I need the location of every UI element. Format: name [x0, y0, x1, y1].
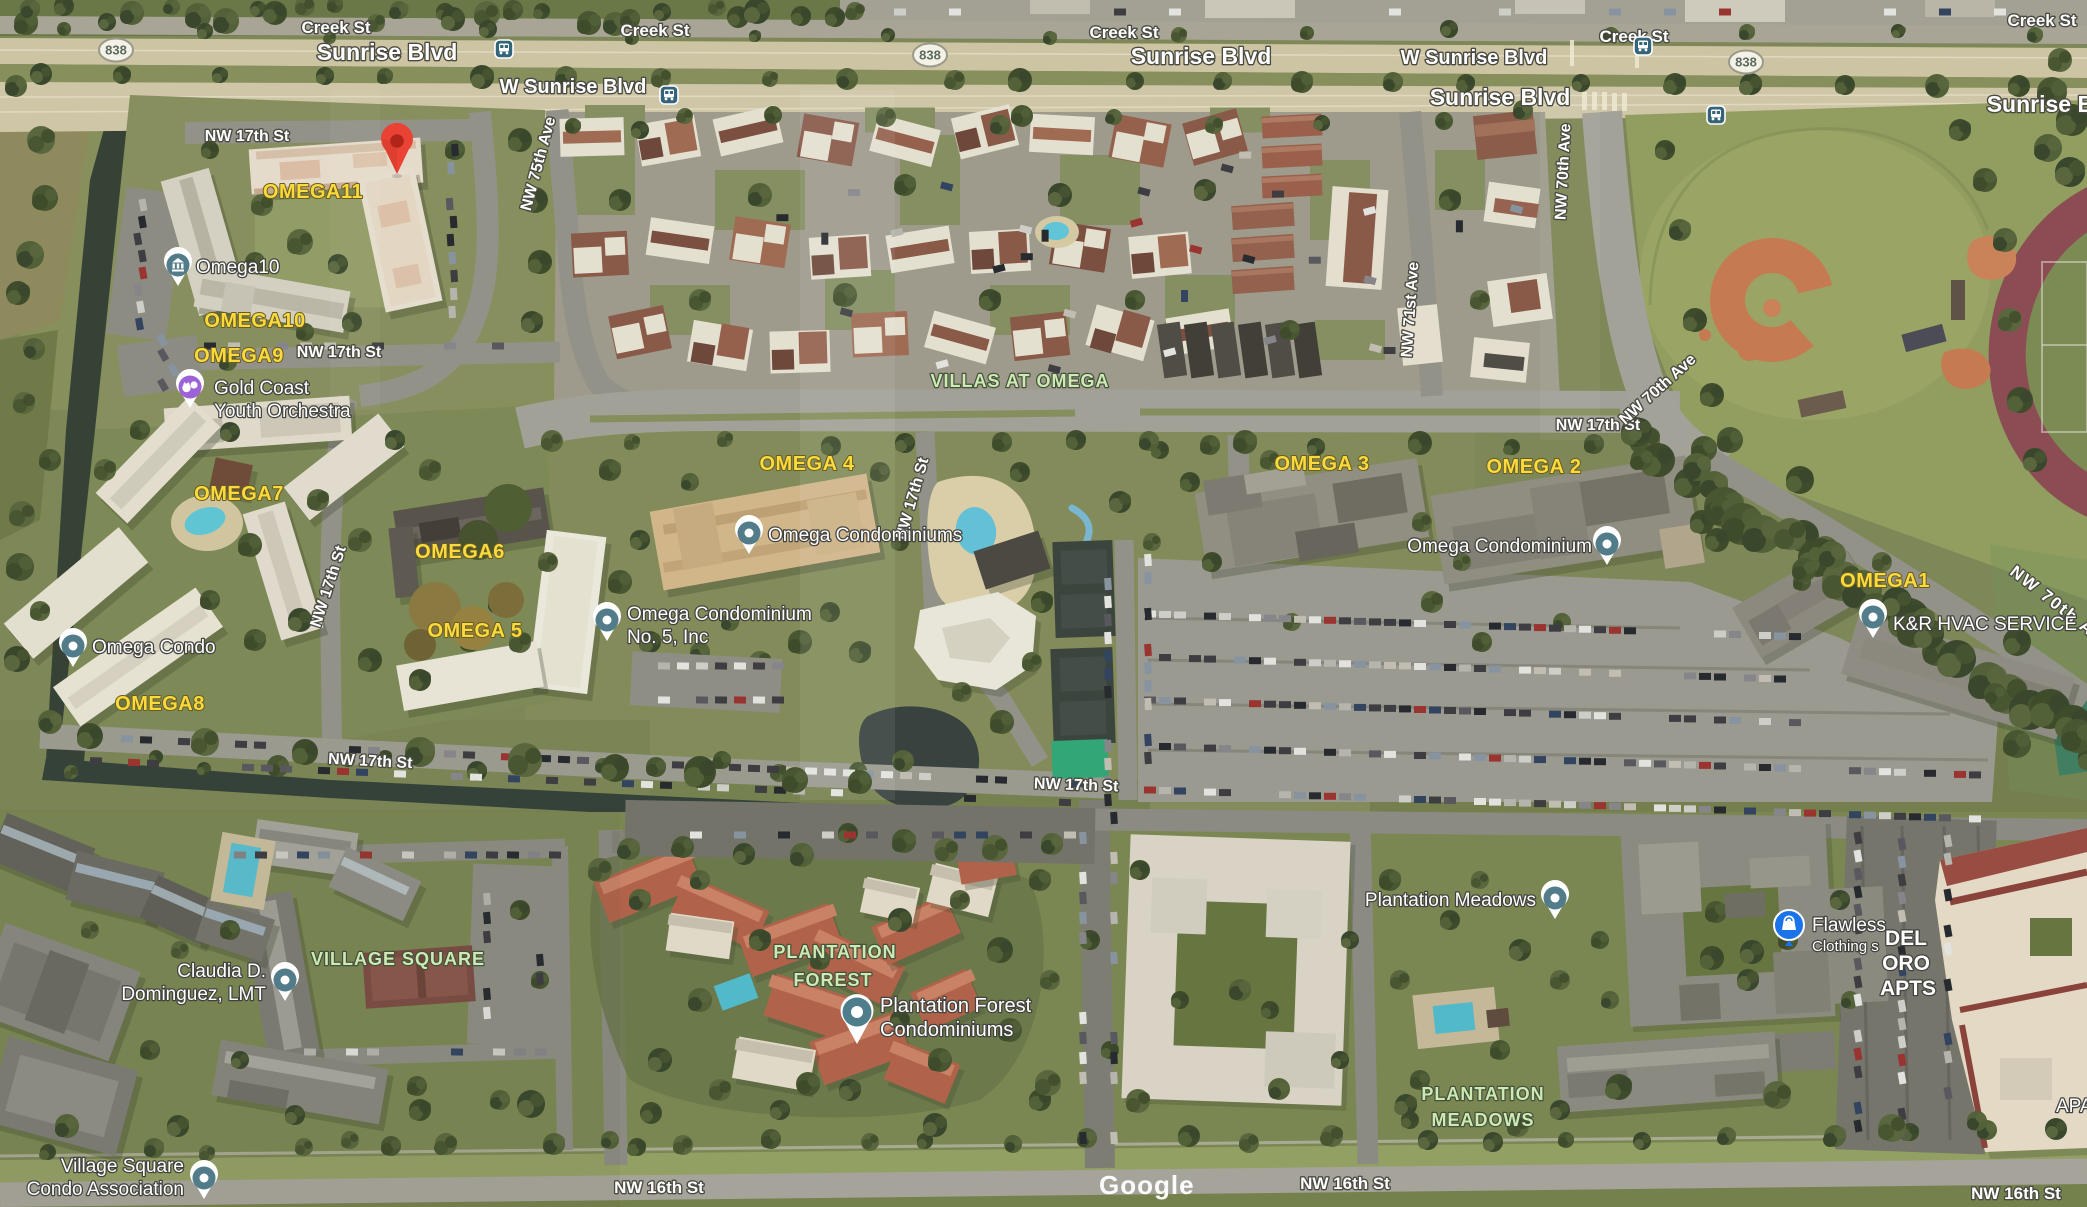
- svg-text:OMEGA 4: OMEGA 4: [760, 453, 855, 475]
- svg-text:VILLAGE SQUARE: VILLAGE SQUARE: [311, 949, 485, 969]
- svg-text:MEADOWS: MEADOWS: [1432, 1110, 1535, 1130]
- svg-text:Omega Condominiums: Omega Condominiums: [768, 525, 962, 546]
- svg-text:838: 838: [105, 43, 127, 58]
- svg-text:PLANTATION: PLANTATION: [773, 942, 896, 962]
- svg-text:Clothing s: Clothing s: [1812, 938, 1879, 955]
- svg-text:Creek St: Creek St: [621, 21, 690, 40]
- svg-text:Sunrise Blvd: Sunrise Blvd: [1131, 43, 1272, 69]
- svg-text:Gold Coast: Gold Coast: [214, 378, 310, 399]
- svg-text:Youth Orchestra: Youth Orchestra: [214, 401, 351, 422]
- svg-text:ORO: ORO: [1882, 952, 1930, 975]
- svg-text:Dominguez, LMT: Dominguez, LMT: [121, 984, 266, 1005]
- svg-text:OMEGA10: OMEGA10: [204, 310, 305, 332]
- svg-text:OMEGA 3: OMEGA 3: [1275, 453, 1370, 475]
- svg-text:Plantation Meadows: Plantation Meadows: [1365, 890, 1536, 911]
- svg-text:FOREST: FOREST: [793, 970, 872, 990]
- svg-text:W Sunrise Blvd: W Sunrise Blvd: [1401, 47, 1548, 69]
- svg-text:Condo Association: Condo Association: [27, 1179, 184, 1200]
- svg-text:OMEGA11: OMEGA11: [263, 181, 363, 203]
- svg-text:OMEGA 2: OMEGA 2: [1487, 456, 1582, 478]
- svg-text:838: 838: [919, 48, 941, 63]
- svg-text:Creek St: Creek St: [1090, 23, 1159, 42]
- svg-text:Omega Condominium: Omega Condominium: [627, 604, 812, 625]
- svg-text:NW 17th St: NW 17th St: [205, 128, 290, 145]
- svg-text:Condominiums: Condominiums: [880, 1019, 1013, 1041]
- svg-text:Omega Condo: Omega Condo: [92, 637, 216, 658]
- svg-text:OMEGA1: OMEGA1: [1840, 570, 1930, 592]
- svg-text:OMEGA9: OMEGA9: [194, 345, 284, 367]
- svg-text:No. 5, Inc: No. 5, Inc: [627, 627, 708, 648]
- svg-text:APTS: APTS: [1880, 977, 1936, 1000]
- svg-text:NW 16th St: NW 16th St: [1300, 1174, 1390, 1193]
- svg-text:Sunrise Blvd: Sunrise Blvd: [1430, 84, 1571, 110]
- svg-text:NW 16th St: NW 16th St: [614, 1178, 704, 1197]
- svg-text:OMEGA8: OMEGA8: [115, 693, 205, 715]
- svg-text:Google: Google: [1099, 1170, 1195, 1200]
- svg-text:NW 16th St: NW 16th St: [1971, 1184, 2061, 1203]
- svg-text:W Sunrise Blvd: W Sunrise Blvd: [500, 76, 647, 98]
- svg-text:NW 17th St: NW 17th St: [1034, 776, 1120, 796]
- svg-text:Omega Condominium: Omega Condominium: [1407, 536, 1592, 557]
- svg-text:Creek St: Creek St: [2008, 11, 2077, 30]
- svg-text:Creek St: Creek St: [302, 18, 371, 37]
- svg-text:Claudia D.: Claudia D.: [177, 961, 266, 982]
- svg-text:Flawless: Flawless: [1812, 915, 1886, 936]
- svg-text:NW 17th St: NW 17th St: [297, 344, 382, 361]
- svg-text:Plantation Forest: Plantation Forest: [880, 995, 1032, 1017]
- svg-text:OMEGA 5: OMEGA 5: [428, 620, 523, 642]
- svg-text:OMEGA6: OMEGA6: [415, 541, 505, 563]
- svg-text:APA: APA: [2056, 1096, 2087, 1117]
- svg-text:OMEGA7: OMEGA7: [194, 483, 284, 505]
- svg-text:Sunrise Blvd: Sunrise Blvd: [317, 39, 458, 65]
- svg-text:PLANTATION: PLANTATION: [1421, 1084, 1544, 1104]
- svg-text:Village Square: Village Square: [61, 1156, 184, 1177]
- svg-text:838: 838: [1735, 55, 1757, 70]
- svg-text:DEL: DEL: [1885, 927, 1927, 950]
- svg-text:Sunrise Blvd: Sunrise Blvd: [1987, 91, 2087, 117]
- svg-text:VILLAS AT OMEGA: VILLAS AT OMEGA: [931, 371, 1110, 391]
- svg-text:Omega10: Omega10: [196, 257, 279, 278]
- svg-text:K&R HVAC SERVICE: K&R HVAC SERVICE: [1893, 614, 2077, 635]
